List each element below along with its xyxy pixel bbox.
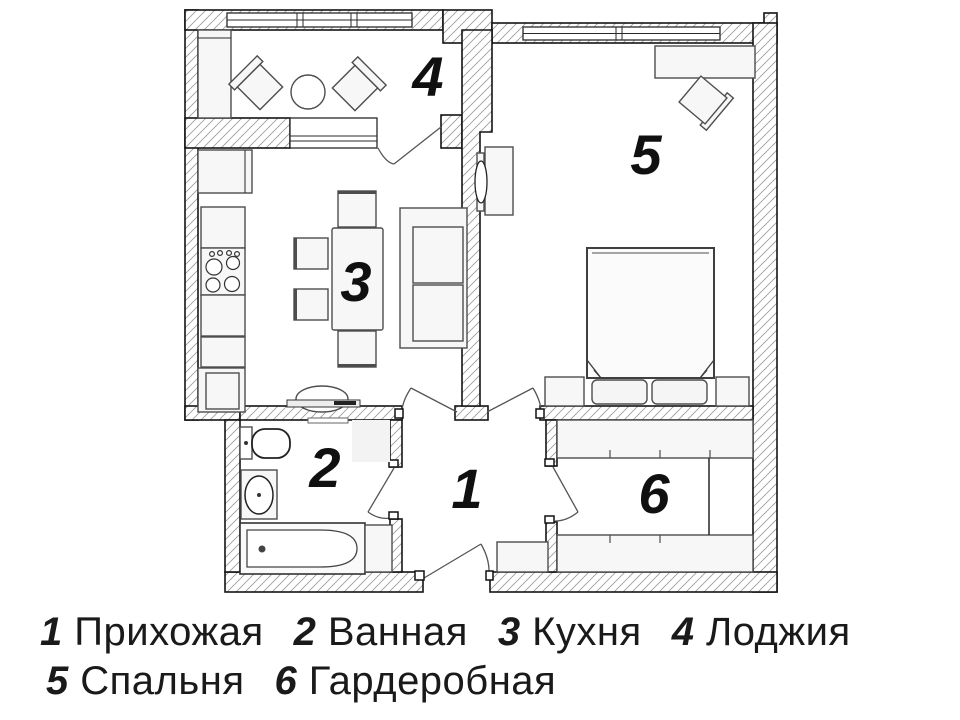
legend: 1 Прихожая 2 Ванная 3 Кухня 4 Лоджия 5 С… [40,608,851,706]
wall-segment [185,10,198,420]
wardrobe-shelf-bottom [557,535,753,572]
wall-segment [185,118,290,148]
wall-segment [455,406,488,420]
legend-item: 6 Гардеробная [274,657,556,706]
legend-number: 3 [498,608,520,657]
nightstand-left [545,377,584,406]
desk [655,46,755,78]
legend-label: Лоджия [706,608,851,657]
wall-segment [441,115,462,148]
legend-number: 5 [46,657,68,706]
room-label-3: 3 [340,250,371,313]
kitchen-door [402,388,457,415]
kitchen-counter [201,295,245,336]
pillow [592,380,647,404]
legend-item: 1 Прихожая [40,608,264,657]
legend-item: 5 Спальня [46,657,244,706]
tv-screen [475,161,487,203]
legend-number: 1 [40,608,62,657]
room-label-1: 1 [451,457,482,520]
drain [259,546,266,553]
legend-label: Ванная [328,608,468,657]
bedroom-door [487,388,541,415]
legend-line-1: 1 Прихожая 2 Ванная 3 Кухня 4 Лоджия [40,608,851,657]
floor-plan-drawing: 4 5 3 2 1 6 [0,0,960,600]
shower-zone [352,420,390,462]
tv-unit [475,147,513,215]
room-label-4: 4 [411,45,443,108]
room-label-5: 5 [630,123,662,186]
room-label-2: 2 [308,436,340,499]
bath-panel [365,525,392,572]
wall-segment [225,420,240,572]
legend-item: 3 Кухня [498,608,642,657]
room-3-kitchen [198,150,467,423]
toilet [240,427,290,459]
legend-line-2: 5 Спальня 6 Гардеробная [46,657,851,706]
loggia-chair-right [330,57,387,114]
floor-plan-page: 4 5 3 2 1 6 1 Прихожая 2 Ванная 3 Кухня … [0,0,960,720]
room-1-hallway [497,542,548,572]
entrance-door [424,544,489,578]
legend-item: 4 Лоджия [672,608,851,657]
legend-label: Спальня [80,657,244,706]
nightstand-right [716,377,749,406]
room-4-loggia [198,30,386,118]
kitchen-counter [201,337,245,367]
bedroom-window [523,27,720,40]
legend-number: 6 [274,657,296,706]
washbasin [241,470,277,519]
kitchen-sofa [400,208,467,348]
loggia-kitchen-window-sill [290,118,377,148]
loggia-door [378,127,441,164]
legend-number: 2 [294,608,316,657]
bathtub [240,523,365,574]
loggia-window [227,13,412,27]
loggia-round-table [291,75,325,109]
wardrobe-shelf-top [557,420,753,458]
fridge [198,150,252,193]
bathroom-door [368,468,394,518]
legend-label: Кухня [532,608,642,657]
loggia-chair-left [229,56,286,113]
pillow [652,380,707,404]
room-label-6: 6 [638,462,670,525]
hallway-cabinet [497,542,548,572]
bed [587,248,714,404]
wall-segment [753,23,777,592]
oven [198,368,245,412]
wall-segment [225,572,423,592]
kitchen-counter [201,207,245,248]
room-5-bedroom [475,46,755,406]
wall-segment [540,406,753,420]
legend-label: Прихожая [74,608,263,657]
legend-item: 2 Ванная [294,608,468,657]
wall-segment [490,572,777,592]
legend-label: Гардеробная [309,657,556,706]
desk-chair [676,73,733,130]
legend-number: 4 [672,608,694,657]
loggia-cabinet [198,30,231,118]
wardrobe-door [553,467,578,521]
